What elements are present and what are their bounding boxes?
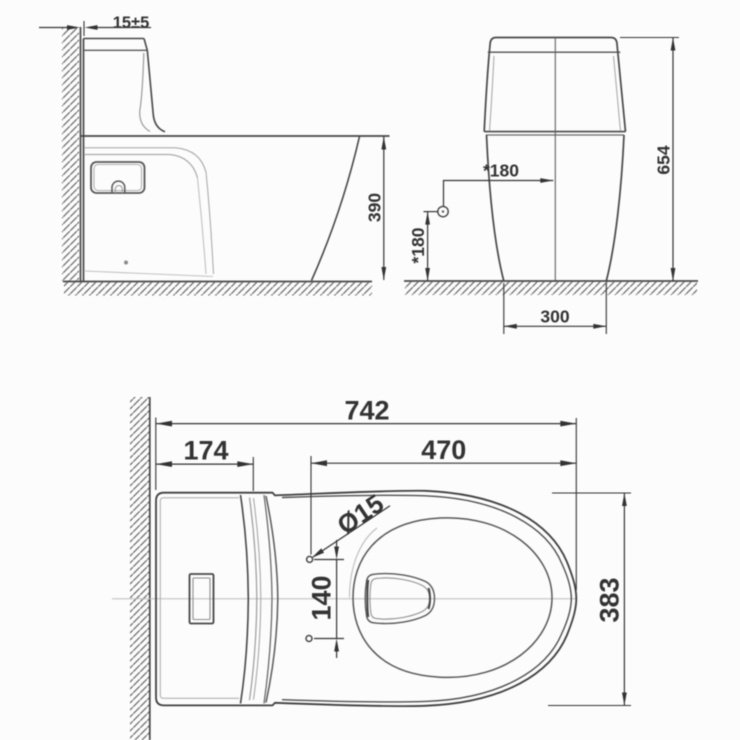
svg-text:*180: *180: [483, 161, 519, 181]
svg-text:654: 654: [654, 145, 674, 174]
svg-text:174: 174: [183, 436, 228, 466]
svg-text:*180: *180: [408, 227, 428, 263]
svg-text:390: 390: [365, 193, 385, 222]
svg-text:300: 300: [540, 307, 569, 327]
svg-text:383: 383: [595, 577, 625, 622]
svg-text:742: 742: [344, 396, 389, 426]
svg-text:15±5: 15±5: [113, 14, 150, 32]
svg-text:470: 470: [421, 435, 466, 465]
svg-text:140: 140: [307, 575, 337, 620]
